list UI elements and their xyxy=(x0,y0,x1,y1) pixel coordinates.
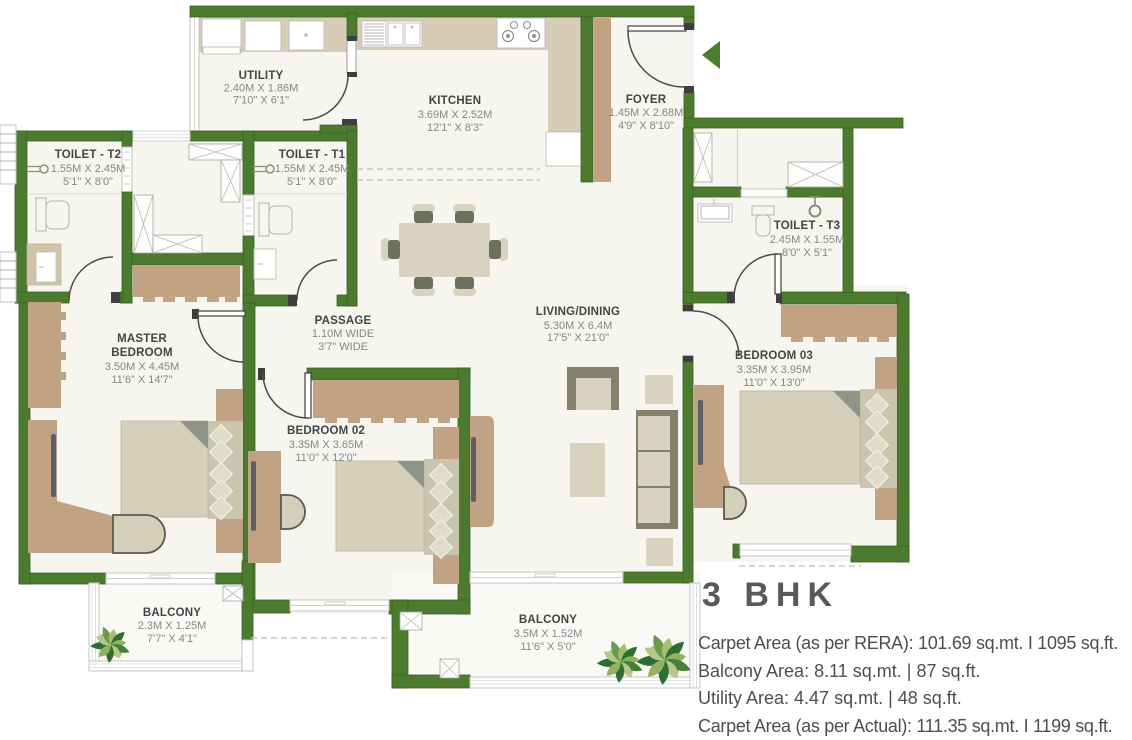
svg-text:12'1" X 8'3": 12'1" X 8'3" xyxy=(427,122,483,134)
svg-text:FOYER: FOYER xyxy=(626,94,667,106)
svg-text:BEDROOM: BEDROOM xyxy=(111,347,172,359)
svg-text:TOILET - T2: TOILET - T2 xyxy=(55,149,122,161)
svg-text:BEDROOM 03: BEDROOM 03 xyxy=(735,350,813,362)
svg-text:Carpet Area (as per RERA): 101: Carpet Area (as per RERA): 101.69 sq.mt.… xyxy=(698,633,1118,653)
svg-text:3.69M X 2.52M: 3.69M X 2.52M xyxy=(418,109,493,121)
svg-text:UTILITY: UTILITY xyxy=(239,70,284,82)
svg-text:1.10M WIDE: 1.10M WIDE xyxy=(312,328,374,340)
svg-text:Utility Area: 4.47 sq.mt. | 48: Utility Area: 4.47 sq.mt. | 48 sq.ft. xyxy=(698,688,962,708)
svg-text:3 BHK: 3 BHK xyxy=(702,576,839,614)
svg-text:3.50M X 4.45M: 3.50M X 4.45M xyxy=(105,361,180,373)
svg-text:Carpet Area (as per Actual): 1: Carpet Area (as per Actual): 111.35 sq.m… xyxy=(698,716,1112,736)
svg-text:5.30M X 6.4M: 5.30M X 6.4M xyxy=(544,320,612,332)
svg-text:4'9" X 8'10": 4'9" X 8'10" xyxy=(618,120,674,132)
svg-text:2.3M X 1.25M: 2.3M X 1.25M xyxy=(138,620,206,632)
svg-text:2.45M X 1.55M: 2.45M X 1.55M xyxy=(770,234,845,246)
svg-text:LIVING/DINING: LIVING/DINING xyxy=(536,306,620,318)
svg-text:11'0" X 12'0": 11'0" X 12'0" xyxy=(295,452,356,464)
svg-text:3.5M X 1.52M: 3.5M X 1.52M xyxy=(514,628,582,640)
svg-text:7'10" X 6'1": 7'10" X 6'1" xyxy=(233,95,289,107)
svg-text:3.35M X 3.95M: 3.35M X 3.95M xyxy=(737,364,812,376)
svg-text:BALCONY: BALCONY xyxy=(519,614,577,626)
svg-text:1.55M X 2.45M: 1.55M X 2.45M xyxy=(51,163,126,175)
svg-text:11'6" X 5'0": 11'6" X 5'0" xyxy=(520,641,575,653)
svg-text:MASTER: MASTER xyxy=(117,333,167,345)
svg-text:2.40M X 1.86M: 2.40M X 1.86M xyxy=(224,83,299,95)
svg-text:11'6" X 14'7": 11'6" X 14'7" xyxy=(111,374,172,386)
svg-text:7'7" X 4'1": 7'7" X 4'1" xyxy=(147,633,197,645)
svg-text:1.45M X 2.68M: 1.45M X 2.68M xyxy=(609,107,684,119)
svg-text:5'1" X 8'0": 5'1" X 8'0" xyxy=(63,176,113,188)
svg-text:3'7" WIDE: 3'7" WIDE xyxy=(318,341,368,353)
svg-text:8'0" X 5'1": 8'0" X 5'1" xyxy=(782,247,832,259)
svg-text:5'1" X 8'0": 5'1" X 8'0" xyxy=(287,176,337,188)
svg-text:PASSAGE: PASSAGE xyxy=(315,315,372,327)
svg-text:BEDROOM 02: BEDROOM 02 xyxy=(287,425,365,437)
svg-text:11'0" X 13'0": 11'0" X 13'0" xyxy=(743,377,804,389)
svg-text:TOILET - T1: TOILET - T1 xyxy=(279,149,346,161)
svg-text:TOILET - T3: TOILET - T3 xyxy=(774,220,841,232)
svg-text:BALCONY: BALCONY xyxy=(143,607,201,619)
svg-text:1.55M X 2.45M: 1.55M X 2.45M xyxy=(275,163,350,175)
svg-text:Balcony Area: 8.11 sq.mt. | 87: Balcony Area: 8.11 sq.mt. | 87 sq.ft. xyxy=(698,661,981,681)
svg-text:3.35M X 3.65M: 3.35M X 3.65M xyxy=(289,439,364,451)
svg-text:17'5" X 21'0": 17'5" X 21'0" xyxy=(547,332,609,344)
svg-text:KITCHEN: KITCHEN xyxy=(429,95,482,107)
